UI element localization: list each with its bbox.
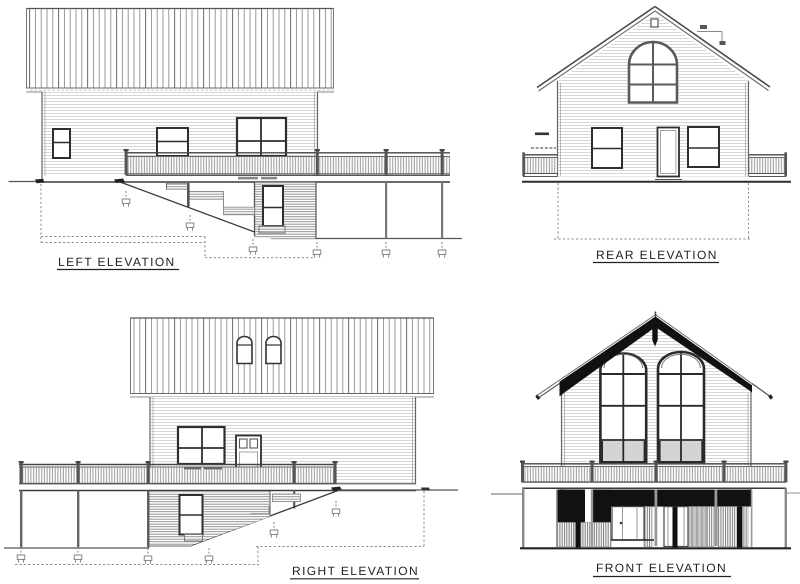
svg-text:FRONT ELEVATION: FRONT ELEVATION bbox=[596, 561, 727, 575]
svg-text:RIGHT ELEVATION: RIGHT ELEVATION bbox=[292, 564, 419, 578]
svg-text:REAR ELEVATION: REAR ELEVATION bbox=[596, 248, 718, 262]
svg-text:LEFT ELEVATION: LEFT ELEVATION bbox=[58, 255, 176, 269]
